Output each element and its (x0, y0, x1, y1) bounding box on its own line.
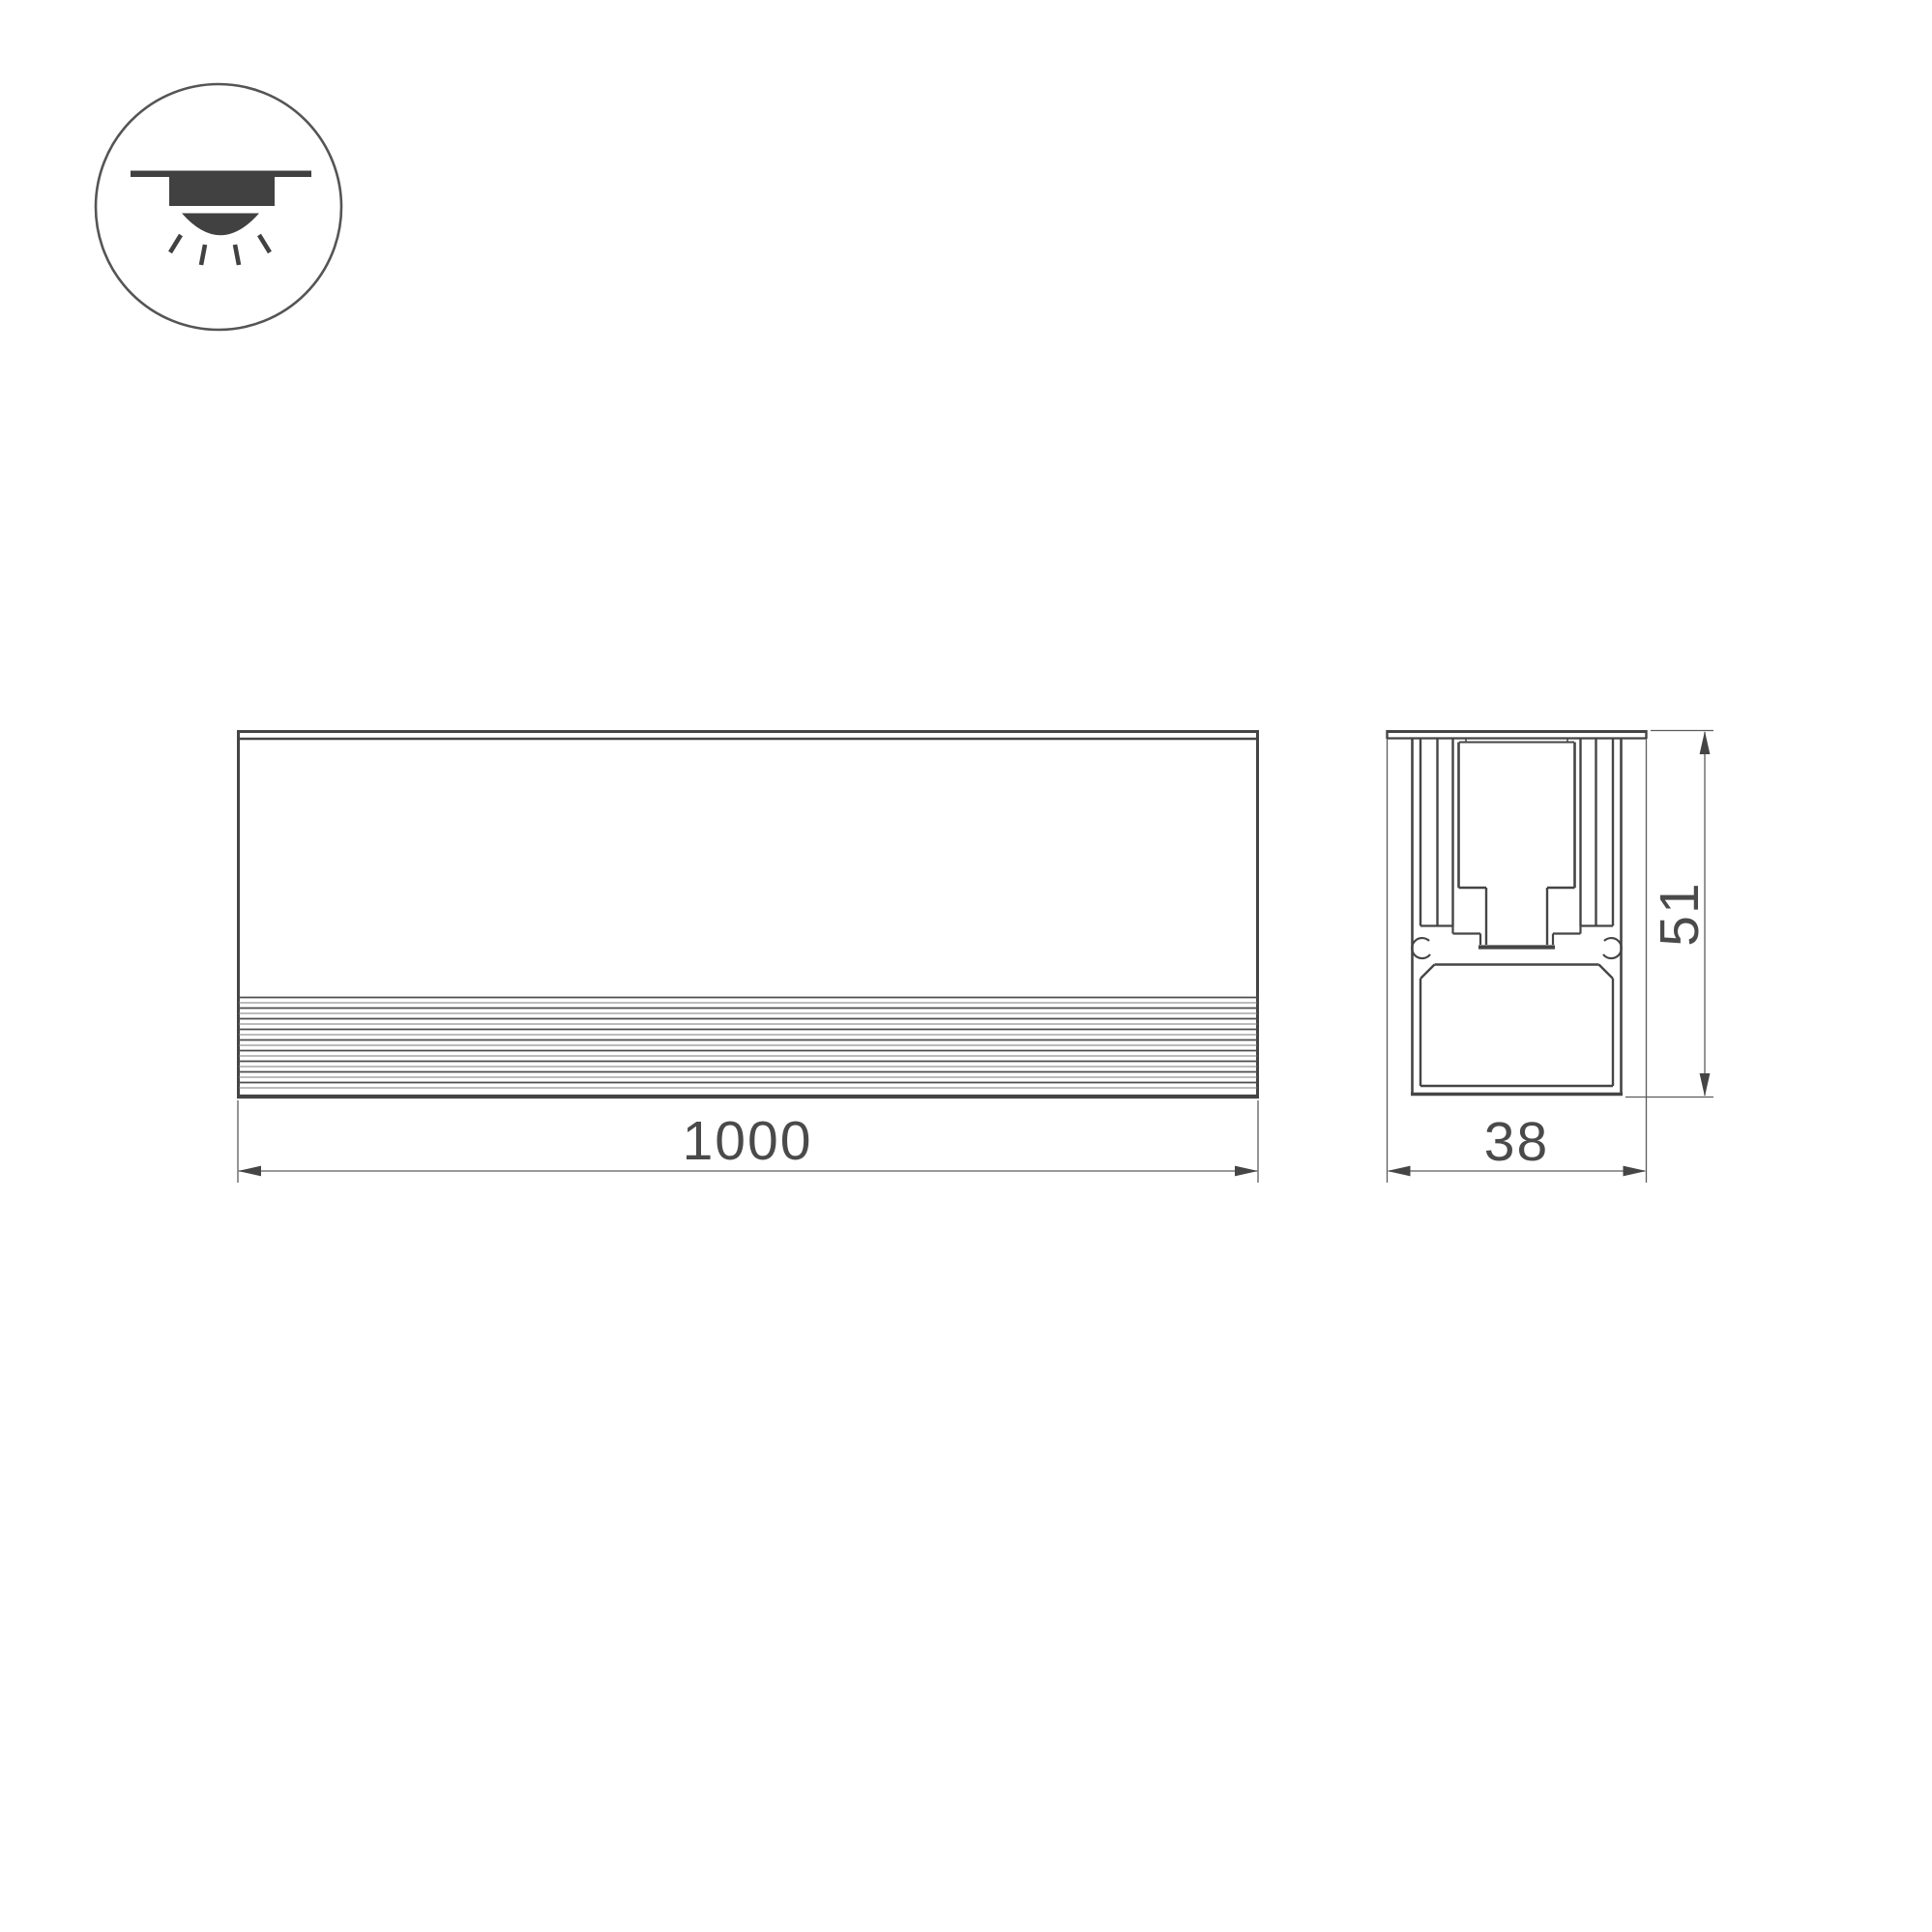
section-outer-walls (1413, 738, 1622, 1096)
recessed-ceiling-light-icon (131, 171, 311, 266)
mounting-type-pictogram (96, 84, 341, 330)
width-arrow-right (1624, 1166, 1647, 1177)
section-channel-outer-walls (1480, 934, 1553, 946)
section-bottom-cavity-chamfers (1420, 965, 1613, 980)
front-rib-lines-light (239, 1003, 1257, 1088)
length-dimension: 1000 (238, 1100, 1258, 1183)
length-arrow-right (1235, 1166, 1258, 1177)
width-dimension-label: 38 (1484, 1111, 1549, 1173)
front-view-drawing (237, 730, 1259, 1098)
section-hook-circle-right (1603, 938, 1622, 958)
section-inner-wall-surfaces (1420, 738, 1613, 926)
light-rays (170, 235, 270, 265)
length-dimension-label: 1000 (683, 1110, 813, 1172)
recessed-housing (169, 177, 275, 206)
pictogram-circle (96, 84, 341, 330)
section-cavity-walls (1459, 743, 1575, 889)
section-bottom-cavity-walls (1420, 979, 1613, 1086)
height-dimension: 51 (1625, 731, 1713, 1098)
section-channel-inner-walls (1486, 888, 1547, 945)
section-view-drawing (1387, 730, 1647, 1096)
width-arrow-left (1388, 1166, 1411, 1177)
length-arrow-left (238, 1166, 261, 1177)
section-shelf-step-verticals (1453, 926, 1581, 934)
height-dimension-label: 51 (1649, 881, 1711, 946)
front-rib-lines-dark (239, 998, 1257, 1083)
profile-dimension-drawing: 1000 (0, 0, 1932, 1932)
height-arrow-top (1700, 731, 1711, 754)
technical-drawing-page: 1000 (0, 0, 1932, 1932)
section-hook-circle-left (1412, 938, 1430, 958)
light-dome (182, 214, 259, 236)
section-inner-fins (1438, 738, 1596, 926)
height-arrow-bottom (1700, 1073, 1711, 1097)
width-dimension: 38 (1388, 739, 1647, 1183)
ceiling-line (131, 171, 311, 178)
